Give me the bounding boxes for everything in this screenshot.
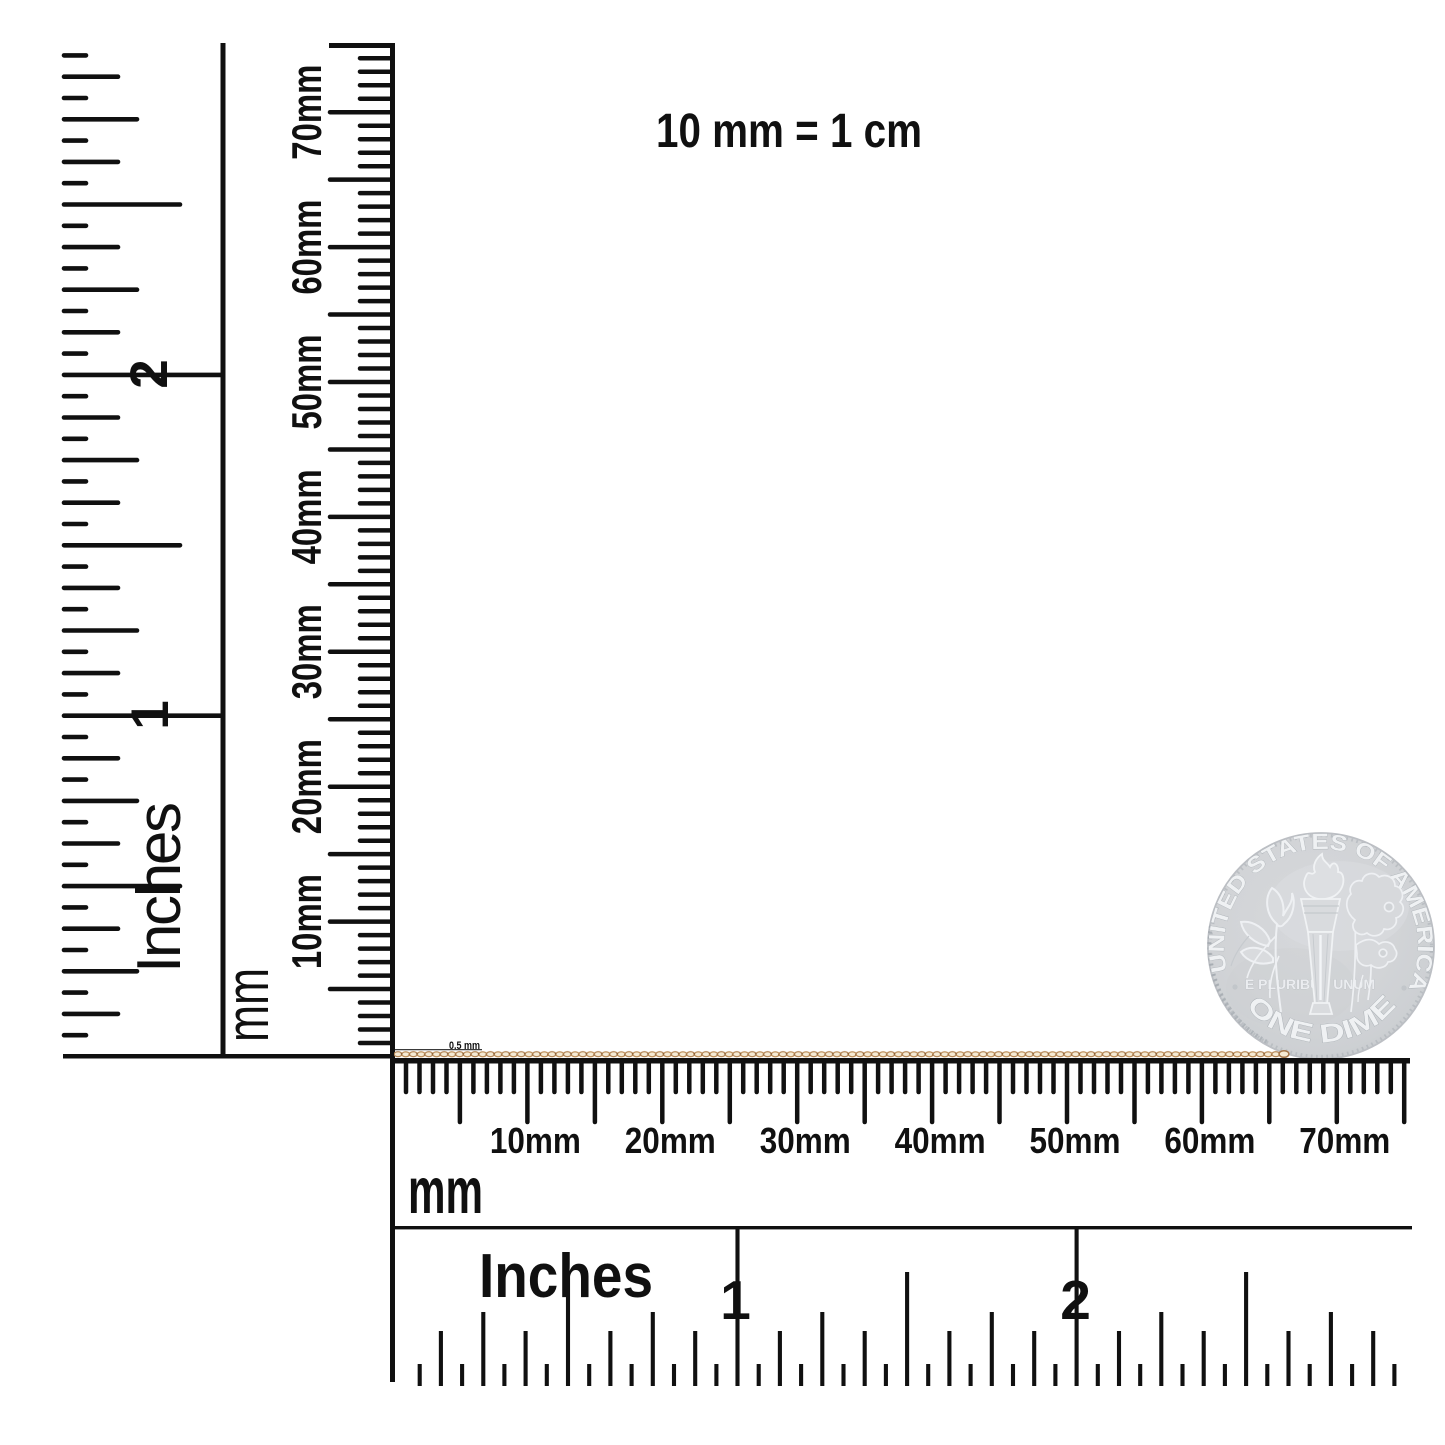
svg-text:mm: mm: [214, 968, 281, 1042]
svg-text:40mm: 40mm: [895, 1120, 986, 1161]
svg-text:Inches: Inches: [125, 802, 194, 973]
svg-text:20mm: 20mm: [625, 1120, 716, 1161]
svg-text:2: 2: [120, 359, 179, 388]
svg-text:1: 1: [720, 1269, 751, 1331]
svg-text:70mm: 70mm: [1299, 1120, 1390, 1161]
svg-text:10mm: 10mm: [490, 1120, 581, 1161]
svg-text:30mm: 30mm: [283, 604, 330, 699]
svg-text:E PLURIBUS UNUM: E PLURIBUS UNUM: [1245, 976, 1375, 992]
svg-text:30mm: 30mm: [760, 1120, 851, 1161]
svg-text:0.5 mm: 0.5 mm: [449, 1040, 480, 1052]
svg-text:10mm: 10mm: [283, 874, 330, 969]
svg-text:50mm: 50mm: [283, 335, 330, 430]
svg-text:40mm: 40mm: [283, 469, 330, 564]
svg-text:70mm: 70mm: [283, 65, 330, 160]
svg-text:10 mm = 1 cm: 10 mm = 1 cm: [656, 105, 922, 158]
svg-text:20mm: 20mm: [283, 739, 330, 834]
svg-text:60mm: 60mm: [1164, 1120, 1255, 1161]
svg-text:Inches: Inches: [479, 1242, 653, 1311]
svg-text:1: 1: [121, 700, 180, 729]
svg-text:2: 2: [1060, 1269, 1091, 1331]
svg-text:50mm: 50mm: [1030, 1120, 1121, 1161]
svg-text:mm: mm: [408, 1154, 483, 1227]
svg-text:60mm: 60mm: [283, 200, 330, 295]
